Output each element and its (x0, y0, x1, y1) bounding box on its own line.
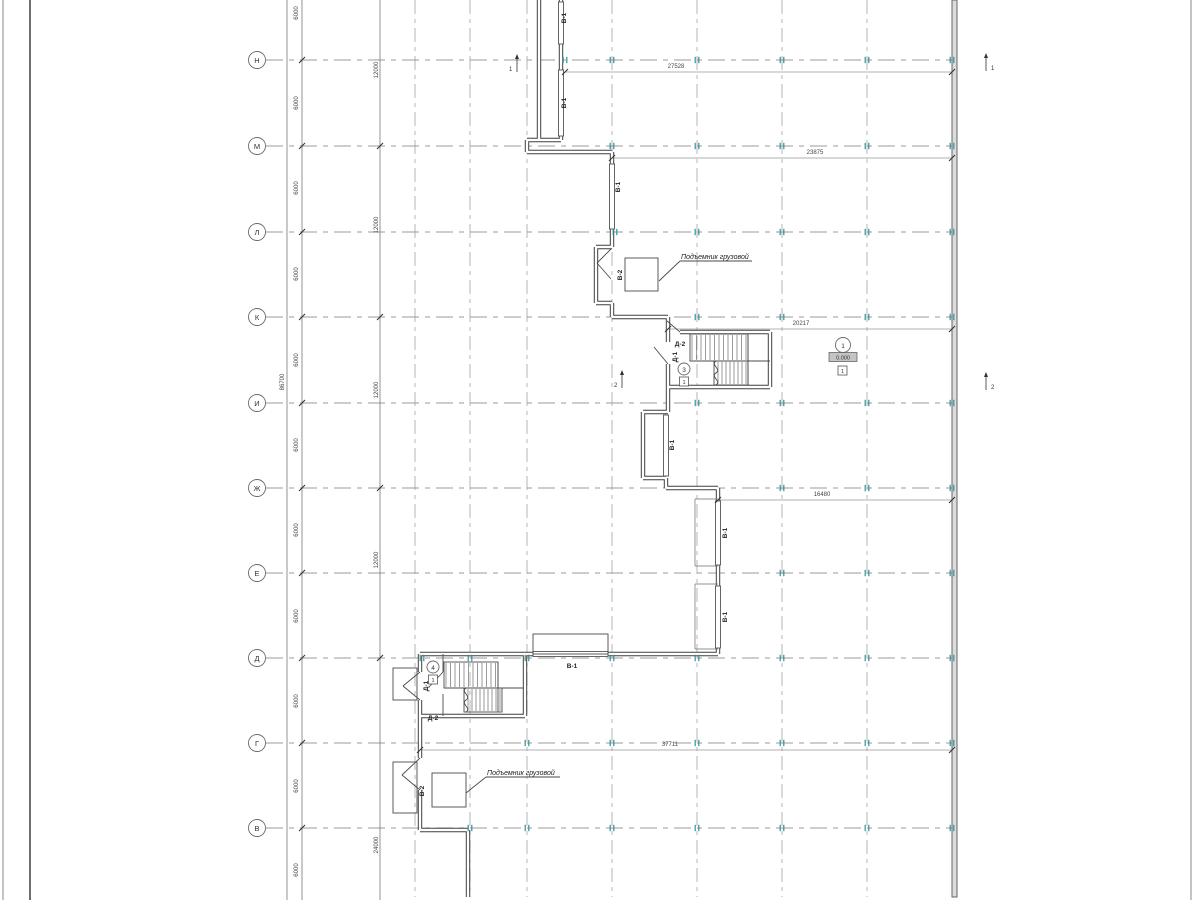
dimension-label: 6000 (294, 694, 300, 708)
element-tags: В-1 В-1 В-1 В-1 В-1 В-1 В-1 В-2 В-2 Д-1 … (419, 12, 729, 796)
room-number: 4 (431, 665, 435, 672)
room-marker-hall: 1 0.000 1 (829, 338, 857, 376)
dimension-label: 16480 (814, 492, 831, 498)
dimension-label: 6000 (294, 779, 300, 793)
entry-vestibule (393, 762, 417, 813)
door-tag: Д-1 (672, 351, 679, 362)
floor-type: 1 (431, 678, 434, 684)
window-b1 (664, 415, 669, 476)
left-dimension-labels: 6000 6000 6000 6000 6000 6000 6000 6000 … (280, 6, 380, 877)
room-marker-stair-upper: 3 1 (678, 363, 690, 386)
window-tag: В-1 (722, 527, 729, 538)
dimension-label: 24000 (374, 836, 380, 853)
sheet-frame (3, 0, 1191, 900)
axis-bubble-h: Н (249, 52, 266, 69)
section-number: 1 (509, 67, 513, 73)
dimension-label: 27528 (668, 64, 685, 70)
dimension-label: 20217 (793, 321, 810, 327)
section-number: 2 (614, 383, 618, 389)
floor-plan-canvas: Н М Л К И Ж Е Д Г В 6000 6000 6000 6000 … (0, 0, 1200, 900)
door-leaves (402, 249, 680, 790)
door-tag: Д-2 (675, 341, 686, 348)
axis-bubbles: Н М Л К И Ж Е Д Г В (249, 52, 266, 837)
dimension-label: 12000 (374, 61, 380, 78)
axis-label: И (254, 399, 259, 408)
window-b1 (716, 586, 721, 648)
window-tag: В-1 (567, 663, 578, 670)
axis-label: М (254, 142, 260, 151)
staircase-lower (444, 662, 523, 712)
axis-label: Ж (254, 484, 261, 493)
window-sill-bump (533, 634, 608, 654)
elevator-door-tag: В-2 (617, 269, 624, 280)
dimension-tick-slashes (299, 57, 955, 831)
axis-bubble-m: М (249, 138, 266, 155)
elevator-door-tag: В-2 (419, 785, 426, 796)
building-walls (420, 0, 770, 897)
dimension-label: 6000 (294, 181, 300, 195)
room-marker-stair-lower: 4 1 (427, 661, 439, 684)
staircase-upper (690, 334, 770, 385)
dimension-label: 6000 (294, 863, 300, 877)
door-tag: Д-2 (428, 715, 439, 722)
window-tag: В-1 (615, 181, 622, 192)
elevation-value: 0.000 (836, 356, 850, 362)
room-number: 3 (682, 367, 686, 374)
width-dimensions: 27528 23875 20217 16480 37711 (420, 64, 952, 750)
section-markers: 1 1 2 2 (509, 53, 995, 391)
window-tag: В-1 (561, 97, 568, 108)
axis-label: Н (254, 56, 259, 65)
freight-elevator-note: Подъемник грузовой (681, 253, 749, 261)
elevator-shaft (432, 773, 466, 807)
axis-label: Е (254, 569, 259, 578)
break-line (714, 361, 717, 385)
window-tag: В-1 (561, 12, 568, 23)
dimension-label: 6000 (294, 6, 300, 20)
window-b1 (610, 164, 615, 229)
leader-lines (466, 261, 752, 793)
axis-bubble-zh: Ж (249, 480, 266, 497)
dimension-label: 6000 (294, 523, 300, 537)
dimension-label: 6000 (294, 438, 300, 452)
freight-elevator-note: Подъемник грузовой (487, 769, 555, 777)
axis-label: Д (254, 654, 259, 663)
axis-bubble-e: Е (249, 565, 266, 582)
window-b1 (716, 501, 721, 565)
dimension-label: 6000 (294, 96, 300, 110)
axis-label: В (254, 824, 259, 833)
dimension-label: 12000 (374, 216, 380, 233)
dimension-label: 12000 (374, 551, 380, 568)
break-line (464, 688, 467, 712)
axis-bubble-g: Г (249, 735, 266, 752)
window-recess-lines (695, 499, 718, 649)
axis-label: К (255, 313, 260, 322)
dimension-label: 6000 (294, 267, 300, 281)
dimension-label: 6000 (294, 609, 300, 623)
row-axis-lines (266, 60, 952, 828)
window-tag: В-1 (669, 439, 676, 450)
window-tag: В-1 (722, 611, 729, 622)
axis-bubble-l: Л (249, 224, 266, 241)
right-boundary-wall (952, 0, 957, 897)
elevator-shaft (625, 258, 658, 291)
section-number: 2 (991, 385, 995, 391)
axis-bubble-v: В (249, 820, 266, 837)
axis-bubble-d: Д (249, 650, 266, 667)
floor-type: 1 (682, 380, 685, 386)
floor-type: 1 (841, 369, 844, 375)
dimension-label: 86700 (280, 373, 286, 390)
section-number: 1 (991, 66, 995, 72)
dimension-label: 12000 (374, 381, 380, 398)
axis-label: Л (255, 228, 260, 237)
dimension-chain-lines (287, 0, 380, 900)
dimension-label: 37711 (662, 742, 679, 748)
axis-bubble-k: К (249, 309, 266, 326)
axis-bubble-i: И (249, 395, 266, 412)
axis-label: Г (255, 739, 259, 748)
room-number: 1 (841, 343, 845, 350)
dimension-label: 23875 (807, 150, 824, 156)
dimension-label: 6000 (294, 353, 300, 367)
